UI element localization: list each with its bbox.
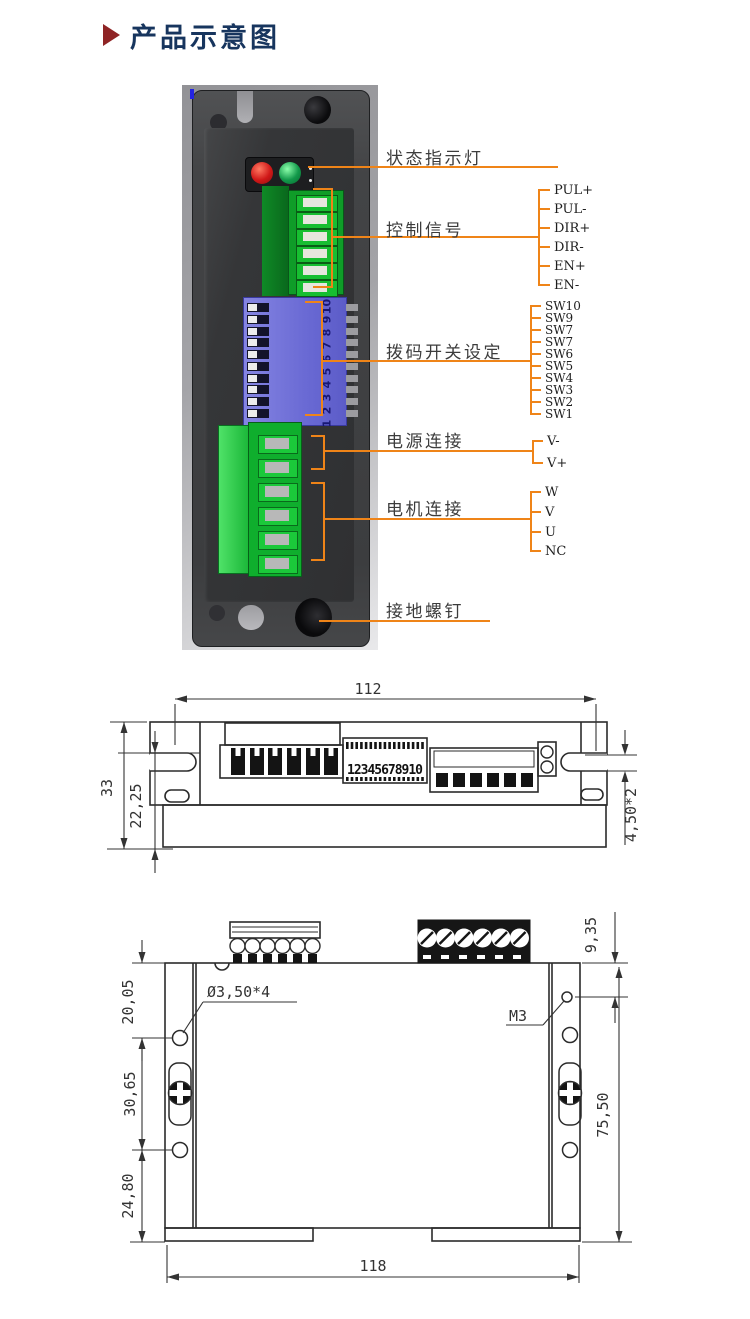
power-terminal	[258, 459, 298, 478]
dim-height-33: 33	[98, 779, 116, 797]
dip-label: 拨码开关设定	[386, 338, 503, 363]
label-hole-spec: Ø3,50*4	[207, 983, 270, 1001]
top-screw-icon	[304, 96, 331, 124]
pin-label-row: EN-	[538, 277, 579, 293]
top-mounting-slot	[237, 91, 253, 123]
dip-toggle	[247, 385, 269, 394]
front-view-right-connector	[418, 920, 531, 963]
ground-label: 接地螺钉	[386, 597, 464, 622]
dip-toggle	[247, 362, 269, 371]
motor-terminal	[258, 507, 298, 526]
dip-toggle	[247, 303, 269, 312]
power-label: 电源连接	[386, 427, 464, 452]
pin-label-row: EN+	[538, 258, 586, 274]
motor-terminal	[258, 483, 298, 502]
dip-pad	[346, 328, 358, 335]
pin-label-row: DIR-	[538, 239, 584, 255]
control-label: 控制信号	[386, 216, 464, 241]
front-view-outline	[165, 963, 580, 1241]
dip-pad	[346, 316, 358, 323]
front-view-right-rail-details	[559, 992, 582, 1158]
dip-pad	[346, 410, 358, 417]
dip-pad	[346, 363, 358, 370]
motor-label: 电机连接	[386, 495, 464, 520]
pin-label-row: V+	[532, 455, 567, 471]
dip-device-bracket	[305, 301, 323, 416]
dip-pad	[346, 386, 358, 393]
dim-inner-2225: 22,25	[127, 783, 145, 828]
power-motor-connector-side	[218, 425, 252, 574]
pin-label-row: U	[530, 524, 556, 540]
led-pin-dot	[309, 179, 312, 182]
power-terminal	[258, 435, 298, 454]
dip-pad	[346, 351, 358, 358]
dip-pad	[346, 304, 358, 311]
top-view-right-connector	[430, 742, 556, 792]
pin-label-row: V	[530, 504, 554, 520]
dim-7550: 75,50	[594, 1092, 612, 1137]
bottom-hole	[209, 605, 225, 621]
dim-slot-450x2: 4,50*2	[622, 788, 640, 842]
front-view-left-rail-details	[169, 1031, 192, 1158]
dip-toggle	[247, 338, 269, 347]
red-led-icon	[251, 162, 273, 184]
drawing-top-view: 12345678910	[95, 675, 650, 880]
dip-pad	[346, 375, 358, 382]
motor-device-bracket	[311, 482, 325, 561]
pin-label-row: PUL-	[538, 201, 587, 217]
dip-toggle	[247, 374, 269, 383]
dim-935: 9,35	[582, 917, 600, 953]
dim-2005: 20,05	[119, 979, 137, 1024]
label-thread-spec: M3	[509, 1007, 527, 1025]
bottom-mounting-slot	[238, 605, 264, 630]
green-led-icon	[279, 162, 301, 184]
dip-toggle	[247, 409, 269, 418]
dim-118: 118	[359, 1257, 386, 1275]
dip-toggle	[247, 327, 269, 336]
dip-toggle	[247, 397, 269, 406]
dip-pad	[346, 398, 358, 405]
product-photo: 10 9 8 7 6 5 4 3 2 1	[182, 85, 378, 650]
dip-toggle	[247, 315, 269, 324]
top-view-dip-switch: 12345678910	[343, 738, 427, 783]
dim-width-112: 112	[354, 680, 381, 698]
top-view-dip-numbers: 12345678910	[347, 763, 423, 778]
ground-screw-icon	[295, 598, 332, 637]
dim-3065: 30,65	[121, 1071, 139, 1116]
control-device-bracket	[313, 188, 333, 288]
control-connector-side	[262, 186, 289, 296]
status-label: 状态指示灯	[386, 144, 484, 169]
drawing-front-view: 20,05 30,65 24,80 9,35 75,50 118 Ø3,50*4…	[95, 905, 645, 1295]
pin-label-row: W	[530, 484, 558, 500]
motor-terminal	[258, 531, 298, 550]
pin-label-row: SW1	[530, 407, 573, 421]
cursor-artifact	[190, 89, 194, 99]
pin-label-row: DIR+	[538, 220, 590, 236]
pin-label-row: PUL+	[538, 182, 593, 198]
dim-2480: 24,80	[119, 1173, 137, 1218]
dip-toggle	[247, 350, 269, 359]
pin-label-row: V-	[532, 433, 560, 449]
page: 产品示意图 10 9 8	[0, 0, 750, 1319]
front-view-left-connector	[230, 922, 320, 963]
power-device-bracket	[311, 435, 325, 470]
motor-terminal	[258, 555, 298, 574]
page-title: 产品示意图	[130, 16, 280, 55]
title-arrow-icon	[103, 24, 120, 46]
dip-pad	[346, 339, 358, 346]
top-view-left-terminals	[231, 748, 338, 775]
pin-label-row: NC	[530, 543, 566, 559]
